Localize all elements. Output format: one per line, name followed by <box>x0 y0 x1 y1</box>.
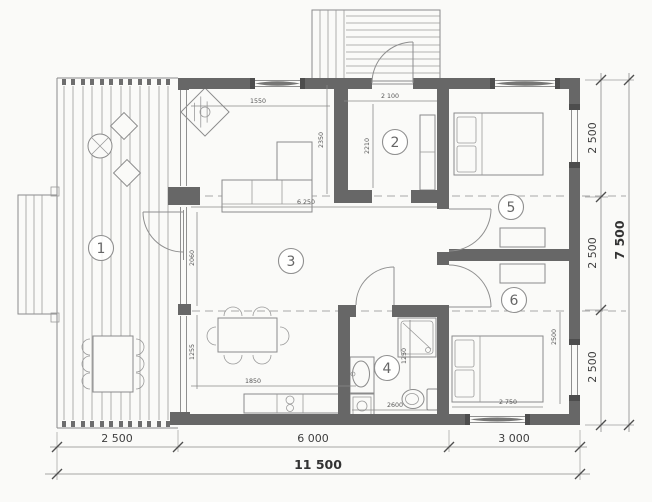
bed-room6 <box>452 336 543 402</box>
kitchen-counter <box>244 394 340 413</box>
dim-right-2: 2 500 <box>586 237 599 269</box>
dim-bottom-1: 2 500 <box>101 432 133 445</box>
side-steps <box>18 187 59 322</box>
room-label-3: 3 <box>279 249 304 274</box>
dim-living-width: 6 250 <box>297 199 315 206</box>
room5-door <box>449 209 491 251</box>
room-number: 6 <box>510 293 519 309</box>
deck-lounge-chairs <box>111 113 141 187</box>
dim-kitchen: 1850 <box>245 378 261 385</box>
floor-plan-drawing: 2 500 6 000 3 000 11 500 2 500 2 500 2 5… <box>0 0 652 502</box>
dim-right-1: 2 500 <box>586 122 599 154</box>
dim-west-lower: 1255 <box>189 344 196 360</box>
dim-living-east: 2350 <box>318 132 325 148</box>
room-number: 3 <box>287 254 296 270</box>
bathroom-door <box>356 267 394 305</box>
dim-bottom-3: 3 000 <box>498 432 530 445</box>
room6-door <box>449 265 491 307</box>
room-label-4: 4 <box>375 356 400 381</box>
dresser-room6 <box>500 264 545 283</box>
floor-plan: 2 500 6 000 3 000 11 500 2 500 2 500 2 5… <box>0 0 652 502</box>
dim-bottom-total: 11 500 <box>294 457 342 472</box>
wall-bedrooms-divider <box>449 249 580 261</box>
toilet <box>402 389 438 410</box>
dim-right-3: 2 500 <box>586 351 599 383</box>
living-dining-table <box>207 307 289 364</box>
dim-bath-width: 2600 <box>387 402 403 409</box>
room-number: 1 <box>97 241 106 257</box>
room-number: 2 <box>391 135 400 151</box>
dim-west-upper: 2060 <box>189 250 196 266</box>
room-label-6: 6 <box>502 288 527 313</box>
wall-hall-east <box>437 78 449 209</box>
entry-wardrobe <box>420 115 435 190</box>
deck-round-table <box>88 134 112 158</box>
dresser-room5 <box>500 228 545 247</box>
dim-bed-width: 2 750 <box>499 399 517 406</box>
deck-dining-table <box>82 336 144 392</box>
room-number: 4 <box>383 361 392 377</box>
room-label-2: 2 <box>383 130 408 155</box>
dim-living-top: 1550 <box>250 98 266 105</box>
dim-bottom-2: 6 000 <box>297 432 329 445</box>
room-number: 5 <box>507 200 516 216</box>
entrance-porch-steps <box>312 10 440 81</box>
dim-entry-width: 2 100 <box>381 93 399 100</box>
room-label-5: 5 <box>499 195 524 220</box>
bathroom-sink <box>350 357 374 393</box>
fireplace <box>181 88 229 136</box>
wall-bath-west <box>338 305 350 425</box>
dim-entry-depth: 2210 <box>364 138 371 154</box>
bed-room5 <box>454 113 543 175</box>
dim-shower: 1250 <box>401 348 408 364</box>
dim-room6-depth: 2500 <box>551 329 558 345</box>
entry-door <box>372 42 413 83</box>
room-label-1: 1 <box>89 236 114 261</box>
dim-right-total: 7 500 <box>612 220 627 259</box>
